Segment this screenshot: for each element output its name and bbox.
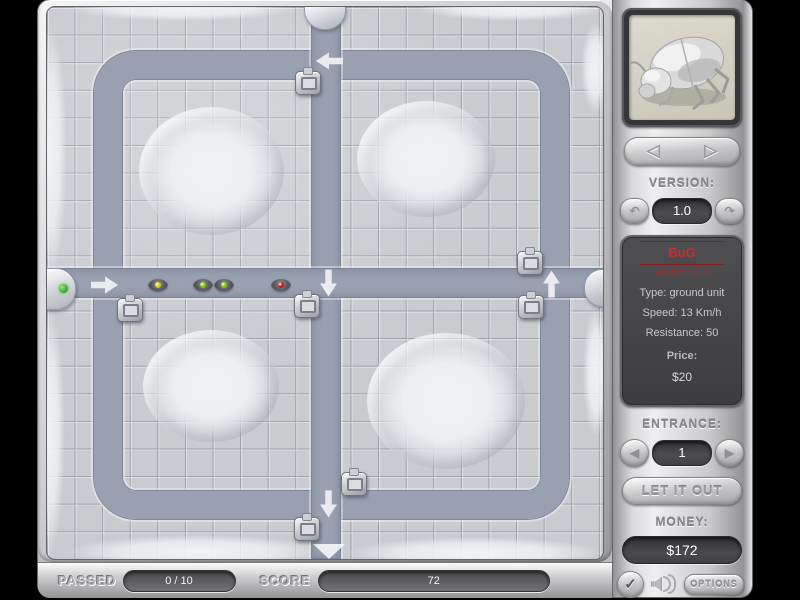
entrance-prev-button[interactable]: ◀ [620, 439, 649, 467]
bug-health-dot [200, 282, 206, 288]
version-label: VERSION: [649, 176, 715, 190]
unit-name: BuG [668, 245, 695, 260]
entrance-label: ENTRANCE: [642, 417, 722, 431]
unit-type: Type: ground unit [639, 287, 724, 299]
tower[interactable] [294, 294, 320, 318]
money-value-field: $172 [622, 536, 742, 564]
entrance-value-field: 1 [652, 440, 712, 466]
red-divider [640, 241, 724, 242]
prev-unit-button[interactable]: ◁ [625, 141, 682, 161]
bug-enemy [149, 279, 167, 291]
passed-value-field: 0 / 10 [123, 570, 236, 592]
options-button[interactable]: OPTIONS [684, 574, 744, 595]
price-value: $20 [672, 370, 692, 384]
unit-version: version 1.0 [655, 267, 709, 279]
unit-nav-control: ◁ ▷ [624, 137, 740, 165]
beetle-image [629, 15, 735, 120]
passed-label: PASSED [58, 573, 117, 588]
unit-info-panel: BuG version 1.0 Type: ground unit Speed:… [620, 235, 744, 407]
tower[interactable] [117, 298, 143, 322]
entrance-next-icon: ▶ [725, 446, 734, 460]
red-divider [640, 264, 724, 265]
score-label: SCORE [260, 573, 311, 588]
unit-speed: Speed: 13 Km/h [643, 307, 722, 319]
entrance-prev-icon: ◀ [630, 446, 639, 460]
snow-patch [67, 6, 297, 21]
snow-patch [347, 537, 603, 560]
version-selector: ↶ 1.0 ↷ [620, 197, 744, 226]
sound-wave-icon [668, 574, 676, 594]
sidebar: ◁ ▷ VERSION: ↶ 1.0 ↷ BuG version 1.0 Typ [612, 0, 752, 597]
snow-patch [46, 307, 65, 557]
money-label: MONEY: [655, 515, 708, 529]
bug-enemy [215, 279, 233, 291]
sidebar-bottom-row: ✓ OPTIONS [617, 571, 747, 597]
bug-health-dot [278, 282, 284, 288]
snow-patch [417, 6, 604, 21]
bug-health-dot [221, 282, 227, 288]
version-up-icon: ↷ [724, 204, 734, 218]
volume-icon[interactable] [651, 574, 677, 594]
exit-right [584, 269, 604, 307]
score-value-field: 72 [318, 570, 550, 592]
game-window: PASSED 0 / 10 SCORE 72 [38, 0, 752, 597]
tower[interactable] [341, 472, 367, 496]
next-arrow-icon: ▷ [704, 141, 717, 161]
entrance-selector: ◀ 1 ▶ [620, 438, 744, 467]
snow-patch [67, 535, 327, 560]
prev-arrow-icon: ◁ [647, 141, 660, 161]
price-label: Price: [667, 350, 698, 362]
version-value-field: 1.0 [652, 198, 712, 224]
tower[interactable] [517, 251, 543, 275]
status-bar: PASSED 0 / 10 SCORE 72 [38, 562, 612, 598]
version-up-button[interactable]: ↷ [715, 198, 744, 224]
bug-enemy [194, 279, 212, 291]
unit-resistance: Resistance: 50 [646, 327, 719, 339]
next-unit-button[interactable]: ▷ [683, 141, 740, 161]
board-frame [38, 0, 612, 562]
entrance-active-dot [59, 284, 68, 293]
bug-health-dot [155, 282, 161, 288]
snow-patch [46, 27, 67, 277]
snow-patch [583, 307, 604, 437]
confirm-button[interactable]: ✓ [617, 571, 644, 598]
version-down-button[interactable]: ↶ [620, 198, 649, 224]
bug-enemy [272, 279, 290, 291]
tower[interactable] [295, 71, 321, 95]
check-icon: ✓ [624, 575, 637, 593]
let-it-out-button[interactable]: LET IT OUT [622, 477, 742, 505]
tower[interactable] [294, 517, 320, 541]
version-down-icon: ↶ [629, 204, 639, 218]
game-board[interactable] [46, 6, 604, 560]
unit-portrait-frame [622, 8, 742, 127]
snow-patch [581, 23, 604, 113]
entrance-next-button[interactable]: ▶ [715, 439, 744, 467]
tower[interactable] [518, 295, 544, 319]
speaker-icon [651, 577, 662, 591]
